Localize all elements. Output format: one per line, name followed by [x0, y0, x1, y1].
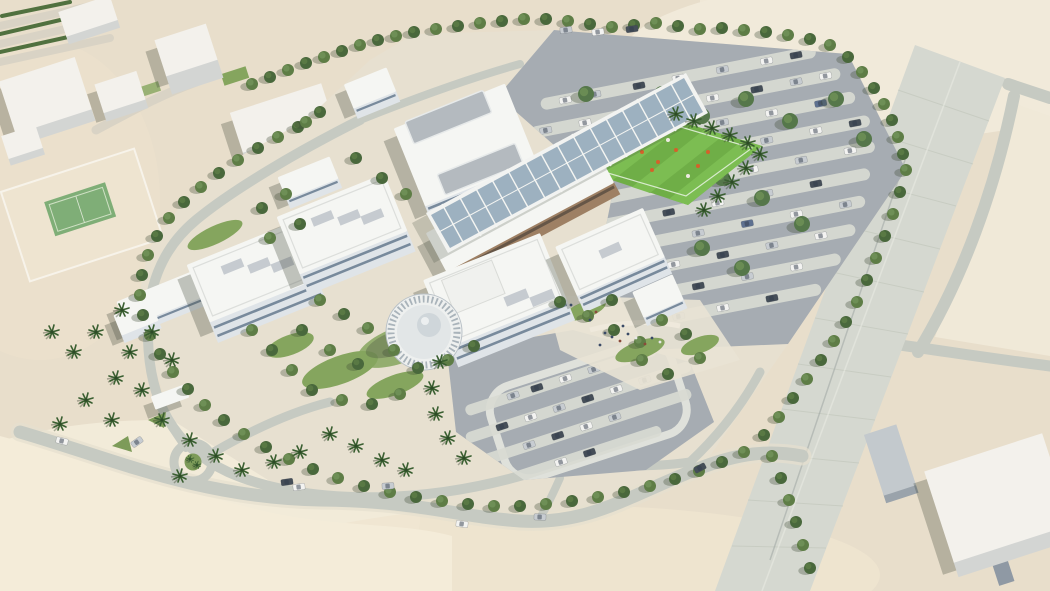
car: [560, 26, 573, 34]
car: [382, 482, 394, 489]
car: [534, 514, 546, 521]
rooflight-dome: [417, 313, 441, 337]
car: [281, 478, 294, 486]
car: [293, 483, 306, 491]
car: [592, 28, 605, 36]
aerial-render: Aerial 3D architectural rendering of a m…: [0, 0, 1050, 591]
car: [456, 520, 469, 528]
car: [626, 25, 639, 33]
